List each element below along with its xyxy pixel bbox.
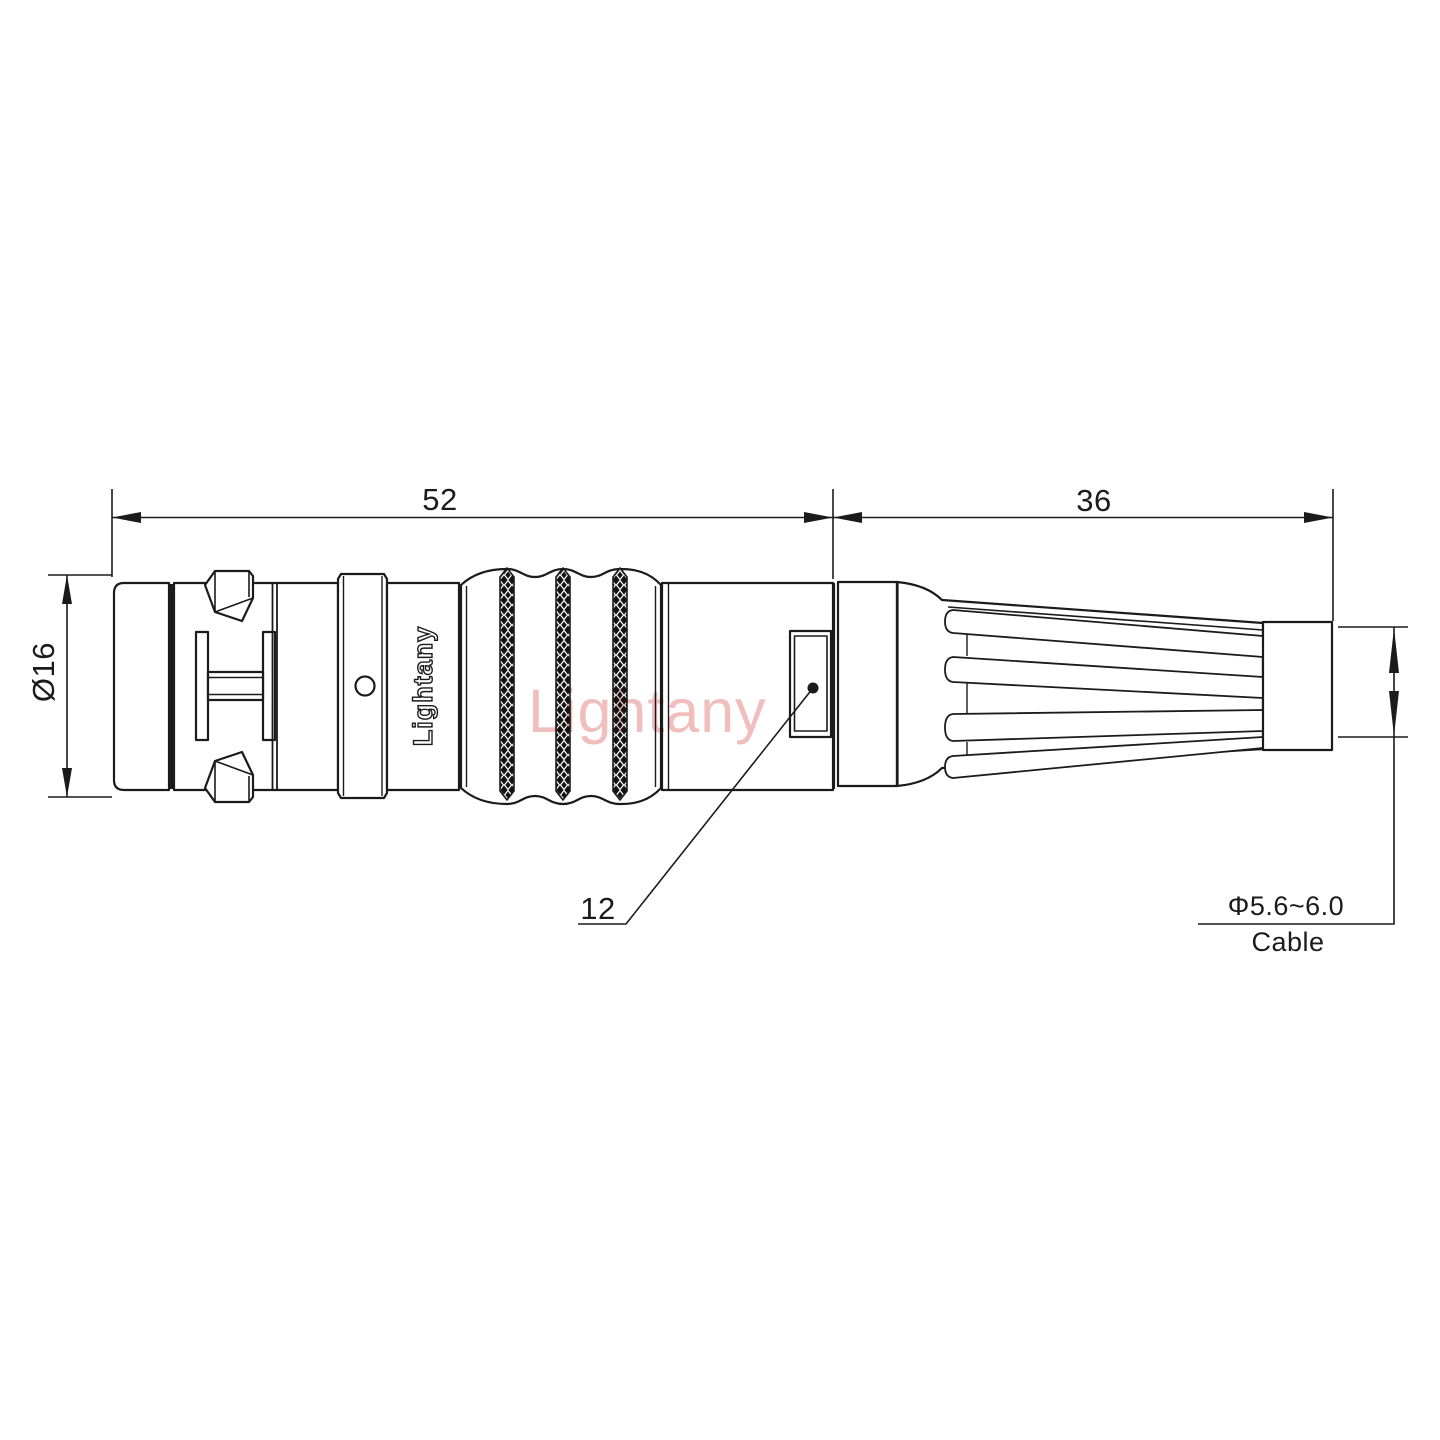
side-hole	[356, 677, 375, 696]
arrow-d16-bottom	[62, 768, 72, 797]
arrow-36-left	[833, 512, 862, 523]
arrow-52-left	[112, 512, 141, 523]
dim-release-sleeve-label: 12	[548, 893, 648, 925]
arrow-cable-bottom	[1389, 691, 1399, 736]
dim-front-diameter-label: Ø16	[28, 592, 64, 752]
knurl-band-1	[500, 568, 514, 800]
arrow-cable-top	[1389, 628, 1399, 673]
arrow-52-right	[804, 512, 833, 523]
key-crossbar	[208, 672, 263, 700]
arrow-36-right	[1304, 512, 1333, 523]
key-post-left	[196, 632, 208, 740]
cable-end-cap	[1263, 622, 1332, 750]
watermark-text: Lightany	[528, 666, 828, 756]
dim-rear-length-label: 36	[1044, 485, 1144, 517]
collet-nut	[838, 582, 897, 786]
ext-lines-cable	[1338, 627, 1408, 737]
front-face-shell	[114, 583, 169, 790]
dim-cable-diameter-label: Φ5.6~6.0	[1186, 890, 1386, 922]
dim-front-length-label: 52	[390, 484, 490, 516]
cable-label: Cable	[1188, 926, 1388, 958]
drawing-canvas: Lightany 52 36 Ø16 12 Φ5.6~6.0 Cable Lig…	[0, 0, 1440, 1440]
body-engraving-label: Lightany	[405, 606, 441, 766]
